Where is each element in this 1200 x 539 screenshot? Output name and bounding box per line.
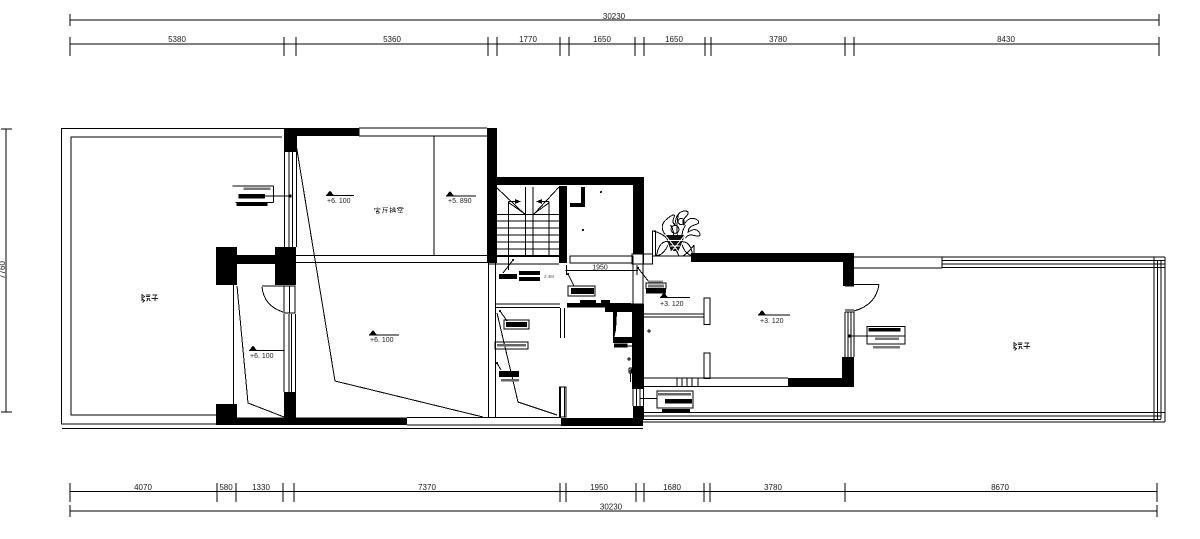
svg-text:8670: 8670 (991, 483, 1009, 492)
svg-text:3780: 3780 (764, 483, 782, 492)
svg-text:+6. 100: +6. 100 (250, 353, 274, 360)
svg-text:1950: 1950 (590, 483, 608, 492)
svg-text:1950: 1950 (592, 265, 608, 272)
svg-text:8430: 8430 (997, 35, 1015, 44)
svg-text:7370: 7370 (418, 483, 436, 492)
svg-text:7760: 7760 (0, 261, 7, 279)
svg-text:30230: 30230 (603, 12, 626, 21)
svg-text:5380: 5380 (168, 35, 186, 44)
svg-text:580: 580 (219, 483, 233, 492)
svg-text:5360: 5360 (383, 35, 401, 44)
svg-text:+3. 120: +3. 120 (660, 301, 684, 308)
svg-text:+3. 120: +3. 120 (760, 318, 784, 325)
svg-text:1330: 1330 (252, 483, 270, 492)
svg-text:4070: 4070 (134, 483, 152, 492)
svg-text:+6. 100: +6. 100 (327, 198, 351, 205)
svg-text:+6. 100: +6. 100 (370, 337, 394, 344)
svg-text:1650: 1650 (665, 35, 683, 44)
svg-text:30230: 30230 (600, 503, 623, 512)
svg-text:1650: 1650 (593, 35, 611, 44)
svg-text:1770: 1770 (519, 35, 537, 44)
svg-text:2.4M: 2.4M (544, 274, 554, 279)
svg-text:3780: 3780 (769, 35, 787, 44)
svg-text:+5. 890: +5. 890 (448, 198, 472, 205)
svg-text:1680: 1680 (663, 483, 681, 492)
